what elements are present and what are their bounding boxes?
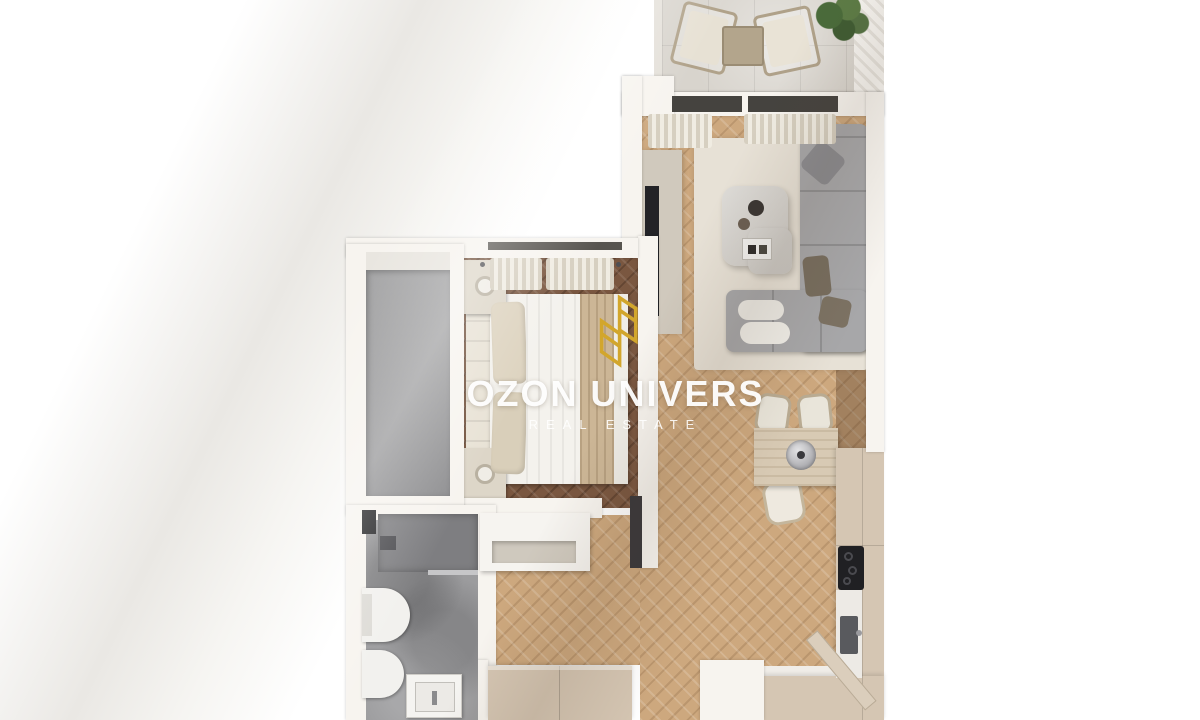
watermark-title: OZON UNIVERS: [458, 373, 773, 415]
kitchen-sink-icon: [840, 616, 858, 654]
living-curtain: [648, 114, 712, 148]
burner: [844, 552, 853, 561]
living-curtain: [744, 114, 836, 144]
shower-glass-partition: [428, 570, 478, 575]
floor-plan-render: OZON UNIVERS REAL ESTATE: [0, 0, 1200, 720]
chair-cushion: [762, 14, 813, 68]
potted-plant-icon: [812, 0, 870, 44]
window-glass: [672, 96, 742, 112]
hallway-console-bench: [480, 513, 590, 571]
cabinet-top-edge: [488, 666, 632, 670]
living-left-wall: [622, 76, 642, 242]
decor-item: [748, 245, 756, 254]
bedroom-curtain: [546, 258, 614, 290]
round-sink-icon: [786, 440, 816, 470]
faucet-icon: [432, 691, 437, 705]
cooktop-icon: [838, 546, 864, 590]
decor-bowl-icon: [738, 218, 750, 230]
shower-niche: [362, 510, 376, 534]
watermark: OZON UNIVERS REAL ESTATE: [458, 294, 773, 432]
burner: [848, 566, 857, 575]
burner: [843, 577, 851, 585]
shower-head-icon: [380, 536, 396, 550]
built-in-wardrobe-interior: [366, 270, 450, 496]
living-right-wall: [866, 92, 884, 452]
entry-wall-stub: [700, 660, 764, 720]
ceiling-spot-icon: [480, 262, 485, 267]
entry-wardrobe-cabinet: [488, 666, 632, 720]
window-glass: [748, 96, 838, 112]
watermark-subtitle: REAL ESTATE: [458, 417, 773, 432]
bedroom-curtain: [490, 258, 542, 290]
decor-item: [759, 245, 767, 254]
decor-tray-icon: [742, 238, 772, 260]
bench-open-shelf: [492, 541, 576, 563]
gold-buildings-logo-icon: [589, 294, 643, 368]
toilet-tank: [362, 594, 372, 636]
sink-drain: [797, 451, 805, 459]
decor-bowl-icon: [748, 200, 764, 216]
cabinet-seam: [559, 666, 560, 720]
faucet-icon: [856, 630, 862, 636]
outdoor-side-table-icon: [722, 26, 764, 66]
bedroom-door-leaf: [630, 496, 642, 568]
sofa-cushion: [817, 295, 852, 329]
wardrobe-shelf: [366, 252, 450, 270]
sofa-cushion: [802, 255, 832, 297]
bedroom-window: [488, 242, 622, 250]
washbasin-icon: [406, 674, 462, 718]
ceiling-spot-icon: [616, 262, 621, 267]
